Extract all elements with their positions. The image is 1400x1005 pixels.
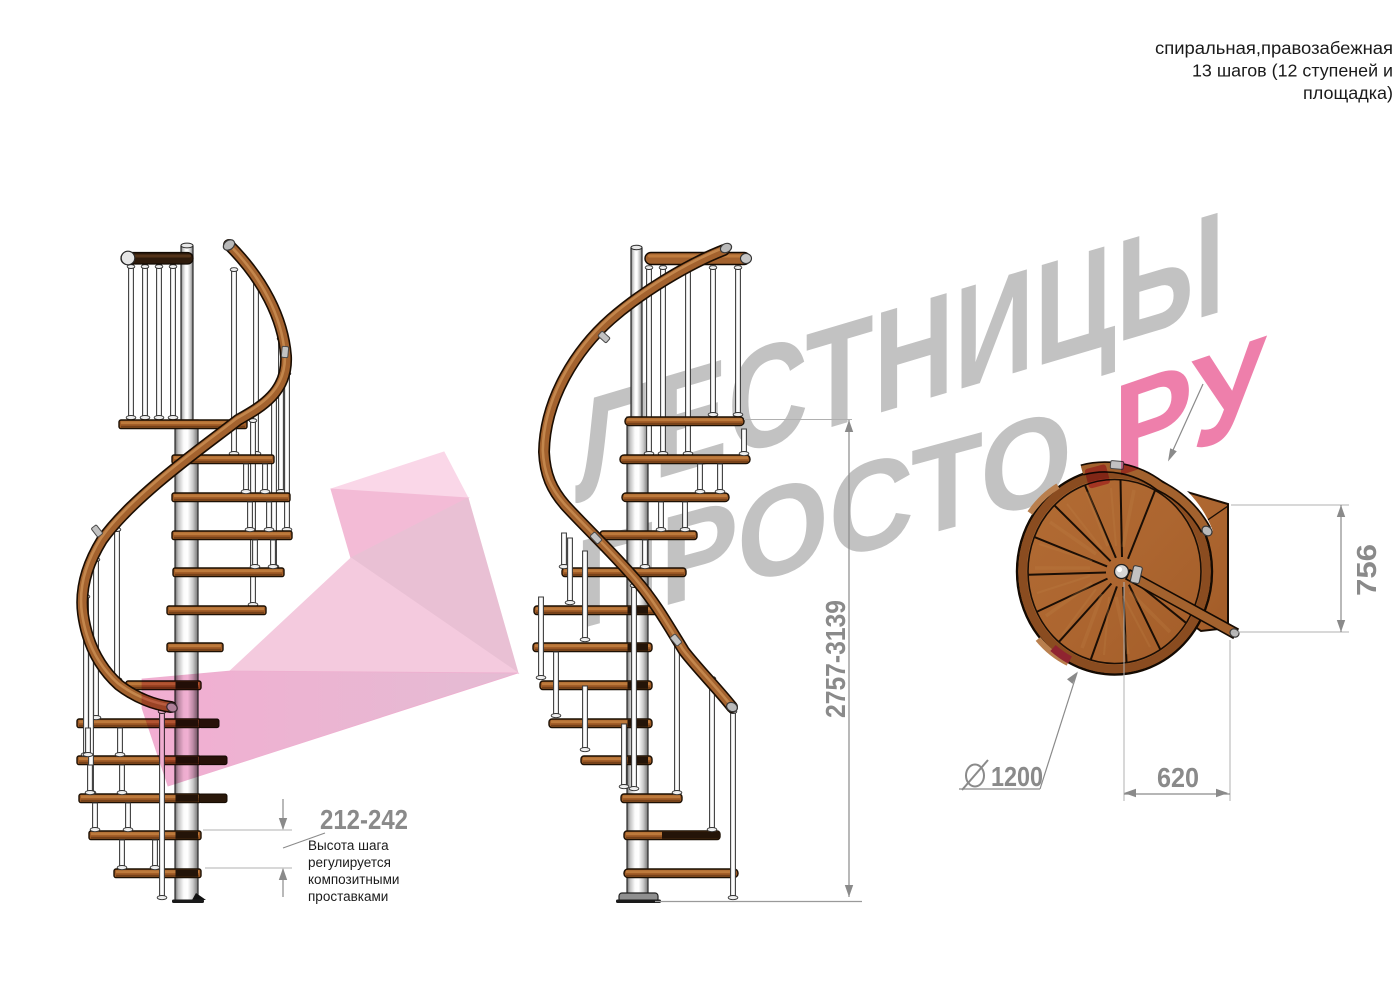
svg-text:13 шагов (12 ступеней и: 13 шагов (12 ступеней и [1192,61,1393,81]
svg-text:проставками: проставками [308,889,388,904]
svg-text:композитными: композитными [308,872,399,887]
svg-text:спиральная,правозабежная: спиральная,правозабежная [1155,38,1393,58]
svg-text:212-242: 212-242 [320,804,408,835]
svg-text:620: 620 [1157,762,1199,793]
svg-text:756: 756 [1351,544,1382,596]
svg-text:Высота шага: Высота шага [308,838,389,853]
svg-text:регулируется: регулируется [308,855,391,870]
svg-text:1200: 1200 [991,761,1043,792]
svg-text:площадка): площадка) [1303,83,1393,103]
svg-text:2757-3139: 2757-3139 [820,600,851,718]
